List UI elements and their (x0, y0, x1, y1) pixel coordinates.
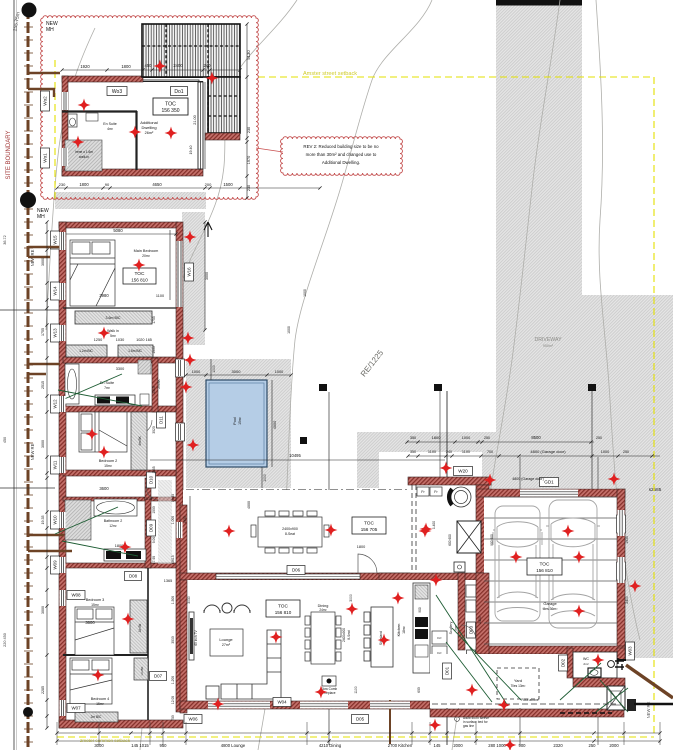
svg-text:Fzr: Fzr (437, 636, 441, 640)
svg-text:4650: 4650 (152, 182, 162, 187)
svg-text:Bedroom 3: Bedroom 3 (86, 598, 105, 602)
svg-text:Bedroom 4: Bedroom 4 (91, 697, 110, 701)
svg-text:En Suite: En Suite (103, 122, 117, 126)
svg-text:Wo1: Wo1 (43, 153, 48, 163)
svg-text:1.400: 1.400 (432, 521, 436, 529)
svg-text:W13: W13 (53, 328, 58, 338)
svg-text:3000: 3000 (41, 258, 45, 266)
svg-text:15m²: 15m² (238, 416, 242, 425)
svg-text:3030: 3030 (187, 596, 191, 604)
svg-text:145 1015: 145 1015 (131, 743, 149, 748)
svg-text:2m²: 2m² (583, 662, 588, 666)
svg-text:Wo2: Wo2 (43, 96, 48, 106)
svg-text:1800: 1800 (121, 64, 131, 69)
svg-text:26m²: 26m² (145, 131, 154, 135)
svg-text:1.200: 1.200 (171, 676, 175, 684)
svg-text:W11: W11 (53, 460, 58, 469)
svg-text:156 810: 156 810 (131, 278, 148, 283)
svg-text:1000: 1000 (263, 474, 267, 482)
svg-text:1000: 1000 (275, 370, 283, 374)
svg-text:12.05: 12.05 (171, 696, 175, 704)
svg-text:Dwelling: Dwelling (141, 125, 156, 130)
svg-text:W20: W20 (458, 469, 468, 474)
svg-text:TOC: TOC (364, 521, 375, 527)
svg-text:W06: W06 (188, 717, 198, 722)
svg-text:Kitchen: Kitchen (397, 624, 401, 637)
svg-text:3000: 3000 (205, 272, 209, 280)
svg-text:1000: 1000 (303, 289, 307, 297)
svg-text:1510: 1510 (144, 497, 152, 501)
svg-text:W07: W07 (71, 706, 81, 711)
svg-text:W15: W15 (53, 235, 58, 245)
svg-text:tiles 36m²: tiles 36m² (543, 607, 559, 611)
svg-text:WC: WC (583, 657, 589, 661)
svg-text:D10: D10 (149, 475, 154, 484)
svg-text:12m²: 12m² (109, 524, 116, 528)
svg-text:3980: 3980 (99, 293, 109, 298)
svg-text:MH: MH (46, 27, 54, 33)
svg-text:NEW RE: NEW RE (30, 443, 35, 460)
svg-text:3000: 3000 (349, 594, 353, 602)
svg-text:2m BK: 2m BK (157, 378, 161, 388)
svg-text:D05: D05 (356, 717, 365, 722)
svg-text:3000: 3000 (232, 369, 242, 374)
svg-text:280 1000: 280 1000 (488, 743, 506, 748)
svg-text:4800 Lounge: 4800 Lounge (221, 743, 246, 748)
svg-text:1250: 1250 (94, 338, 102, 342)
svg-text:15m²: 15m² (96, 702, 105, 706)
svg-text:TOC: TOC (278, 604, 289, 610)
svg-text:2400: 2400 (625, 596, 629, 604)
svg-text:4000: 4000 (247, 501, 251, 509)
svg-text:1970: 1970 (247, 156, 251, 164)
svg-text:Wo3: Wo3 (112, 89, 122, 95)
svg-text:250: 250 (596, 436, 602, 440)
svg-text:1800: 1800 (357, 545, 365, 549)
svg-text:TOC: TOC (539, 562, 550, 568)
svg-text:4800 (Garage door): 4800 (Garage door) (530, 449, 566, 454)
svg-text:s2585: s2585 (649, 487, 662, 492)
svg-text:950: 950 (160, 743, 168, 748)
svg-text:3600: 3600 (85, 620, 95, 625)
svg-text:2meter common setback: 2meter common setback (80, 738, 131, 743)
svg-text:D09: D09 (149, 523, 154, 532)
svg-text:1000: 1000 (462, 436, 470, 440)
svg-text:1755: 1755 (152, 316, 156, 324)
svg-text:W08: W08 (71, 593, 81, 598)
svg-text:Garage: Garage (543, 601, 557, 606)
svg-text:600: 600 (417, 687, 421, 693)
svg-text:8500: 8500 (531, 435, 541, 440)
svg-text:2515: 2515 (152, 386, 156, 394)
svg-text:2400: 2400 (478, 616, 482, 624)
svg-text:2000: 2000 (453, 743, 463, 748)
svg-text:1000: 1000 (287, 326, 291, 334)
svg-text:20m²: 20m² (142, 254, 151, 258)
svg-text:D06: D06 (292, 568, 301, 573)
svg-text:450: 450 (3, 437, 7, 443)
svg-text:65 inch TV: 65 inch TV (194, 630, 198, 646)
svg-text:900 600: 900 600 (490, 534, 494, 546)
svg-text:W16: W16 (187, 267, 192, 277)
svg-text:2515: 2515 (41, 381, 45, 389)
svg-text:Air Bk: Air Bk (138, 623, 142, 632)
svg-text:2000: 2000 (609, 743, 619, 748)
svg-text:156 810: 156 810 (275, 610, 292, 615)
svg-text:1800: 1800 (432, 435, 442, 440)
svg-text:156 705: 156 705 (361, 527, 378, 532)
svg-text:W10: W10 (53, 515, 58, 525)
svg-text:Lounge: Lounge (219, 637, 233, 642)
svg-text:21.00: 21.00 (193, 115, 197, 125)
svg-text:19.40: 19.40 (189, 146, 193, 155)
svg-text:Do1: Do1 (174, 89, 183, 95)
svg-text:more than 30m² and changed use: more than 30m² and changed use to (306, 152, 377, 157)
svg-text:3000: 3000 (41, 606, 45, 614)
svg-text:19.35: 19.35 (171, 494, 175, 502)
svg-text:1100: 1100 (428, 450, 436, 454)
svg-text:Amster street setback: Amster street setback (303, 71, 357, 77)
svg-text:2700 Kitchen: 2700 Kitchen (388, 743, 413, 748)
svg-text:TOC: TOC (134, 271, 145, 277)
svg-text:1000: 1000 (152, 346, 156, 354)
svg-text:156 350: 156 350 (161, 108, 179, 114)
svg-text:1000: 1000 (192, 370, 200, 374)
svg-text:1935: 1935 (183, 516, 187, 524)
svg-text:D11: D11 (159, 416, 164, 424)
svg-text:250: 250 (623, 450, 629, 454)
svg-text:600 600: 600 600 (448, 534, 452, 546)
svg-text:350: 350 (410, 450, 416, 454)
svg-text:230: 230 (247, 127, 251, 133)
svg-text:1.5m BIC: 1.5m BIC (128, 349, 142, 353)
svg-text:1365: 1365 (164, 579, 172, 583)
svg-text:4210 Dining: 4210 Dining (319, 743, 342, 748)
svg-text:3600: 3600 (99, 486, 109, 491)
svg-text:1000: 1000 (212, 365, 216, 373)
svg-text:W04: W04 (277, 700, 287, 705)
svg-text:250: 250 (484, 436, 490, 440)
svg-text:950m²: 950m² (543, 344, 554, 348)
svg-text:1100: 1100 (354, 686, 358, 693)
svg-text:1.2m BIC: 1.2m BIC (79, 349, 93, 353)
svg-text:D03: D03 (469, 625, 474, 634)
svg-text:W14: W14 (53, 286, 58, 296)
svg-text:240: 240 (446, 450, 452, 454)
svg-text:1000: 1000 (152, 506, 156, 514)
svg-text:18m²: 18m² (402, 625, 406, 634)
svg-text:2285: 2285 (41, 686, 45, 694)
svg-text:3000: 3000 (94, 743, 104, 748)
svg-text:4000: 4000 (273, 421, 277, 429)
svg-text:19.35: 19.35 (41, 516, 45, 525)
svg-text:1.500: 1.500 (171, 596, 175, 604)
svg-text:1100: 1100 (156, 294, 164, 298)
svg-text:36.72: 36.72 (3, 235, 7, 245)
svg-text:D07: D07 (154, 674, 163, 679)
svg-text:700: 700 (487, 450, 493, 454)
svg-text:900: 900 (418, 607, 422, 613)
svg-text:MH: MH (37, 214, 45, 220)
svg-text:145: 145 (434, 743, 442, 748)
svg-text:Roof above: Roof above (521, 698, 538, 702)
svg-text:1920: 1920 (80, 64, 90, 69)
svg-text:walk-in: walk-in (79, 155, 89, 159)
svg-text:Bedroom 2: Bedroom 2 (99, 459, 118, 463)
svg-text:1185: 1185 (152, 466, 156, 473)
svg-text:450: 450 (145, 63, 153, 68)
svg-text:W12: W12 (53, 399, 58, 409)
svg-text:13615: 13615 (171, 555, 175, 564)
svg-text:D01: D01 (445, 666, 450, 675)
svg-text:156 810: 156 810 (536, 568, 553, 573)
svg-text:REV 2: Reduced building size t: REV 2: Reduced building size to be no (303, 144, 379, 149)
svg-text:Bathroom 2: Bathroom 2 (104, 519, 123, 523)
svg-text:15m²: 15m² (91, 603, 100, 607)
svg-text:9.00: 9.00 (152, 537, 156, 544)
svg-text:Tiles 13m²: Tiles 13m² (511, 684, 526, 688)
svg-text:SITE BOUNDARY: SITE BOUNDARY (6, 131, 12, 180)
svg-text:Additional Dwelling.: Additional Dwelling. (322, 160, 360, 165)
svg-text:3000: 3000 (41, 440, 45, 448)
svg-text:1800: 1800 (79, 182, 89, 187)
svg-text:10495: 10495 (289, 453, 301, 458)
svg-text:1500: 1500 (223, 182, 233, 187)
svg-text:Main Bedroom: Main Bedroom (134, 249, 159, 253)
svg-text:1100: 1100 (462, 450, 470, 454)
svg-text:4m²: 4m² (107, 127, 114, 131)
svg-text:8-Seat: 8-Seat (285, 532, 295, 536)
svg-text:200: 200 (205, 182, 212, 187)
svg-text:230: 230 (59, 182, 66, 187)
svg-text:27m²: 27m² (222, 643, 231, 647)
svg-text:2320: 2320 (553, 743, 563, 748)
svg-text:1.000: 1.000 (171, 516, 175, 524)
svg-text:17.95: 17.95 (152, 556, 156, 564)
svg-text:240: 240 (204, 63, 212, 68)
svg-text:GD1: GD1 (544, 480, 554, 485)
svg-text:250: 250 (589, 743, 597, 748)
svg-text:90: 90 (105, 182, 110, 187)
svg-text:4m BK: 4m BK (138, 435, 142, 445)
svg-text:1000: 1000 (601, 450, 609, 454)
svg-text:DRIVEWAY: DRIVEWAY (534, 337, 562, 343)
svg-text:2400x900: 2400x900 (282, 527, 298, 531)
svg-text:Walk in: Walk in (107, 329, 119, 333)
svg-text:Irene o 1.6m: Irene o 1.6m (75, 150, 93, 154)
svg-text:D02: D02 (561, 658, 566, 667)
svg-text:4800 (Garage door): 4800 (Garage door) (512, 477, 544, 481)
svg-text:3020: 3020 (152, 426, 156, 434)
svg-text:Un BK: Un BK (140, 667, 144, 676)
svg-text:TOC: TOC (165, 102, 176, 108)
svg-text:24m²: 24m² (319, 608, 326, 612)
svg-text:220 450: 220 450 (3, 633, 7, 647)
svg-text:8-Seat: 8-Seat (347, 630, 351, 640)
svg-text:5080: 5080 (113, 228, 123, 233)
svg-text:2m BIC: 2m BIC (91, 715, 102, 719)
svg-text:900: 900 (519, 743, 527, 748)
svg-text:1030: 1030 (116, 338, 124, 342)
svg-text:Yard: Yard (514, 678, 522, 683)
svg-text:Pool: Pool (233, 417, 237, 425)
svg-text:W09: W09 (53, 560, 58, 570)
svg-text:1755: 1755 (41, 328, 45, 336)
svg-text:gas line: gas line (463, 724, 474, 728)
svg-text:5130: 5130 (246, 50, 251, 60)
svg-text:2400: 2400 (173, 63, 183, 68)
svg-text:1935: 1935 (625, 536, 629, 544)
svg-text:3300: 3300 (116, 367, 124, 371)
svg-text:3030: 3030 (171, 636, 175, 644)
svg-text:7m²: 7m² (104, 386, 111, 390)
svg-text:D08: D08 (129, 574, 138, 579)
svg-text:15m²: 15m² (104, 464, 113, 468)
svg-text:350: 350 (410, 436, 416, 440)
svg-text:750: 750 (171, 715, 175, 721)
svg-text:1020 165: 1020 165 (136, 338, 152, 342)
svg-text:3.6m BIC: 3.6m BIC (106, 316, 121, 320)
svg-text:2400x900: 2400x900 (342, 628, 346, 642)
svg-text:W03: W03 (628, 646, 633, 656)
